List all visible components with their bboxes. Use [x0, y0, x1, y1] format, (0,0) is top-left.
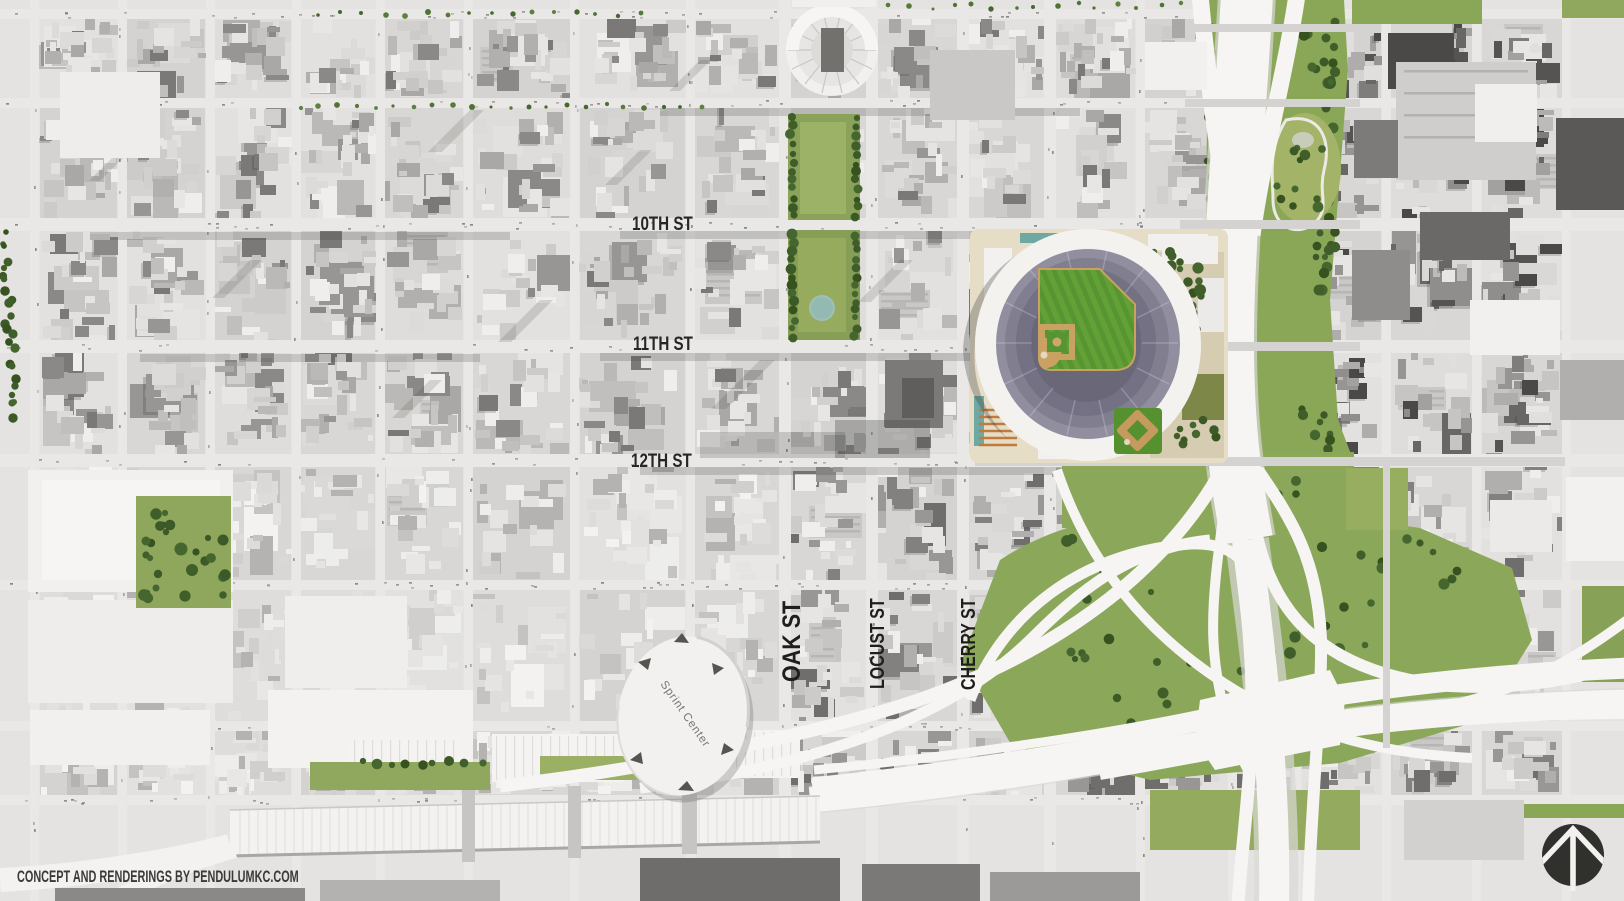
- svg-text:11TH ST: 11TH ST: [633, 332, 693, 354]
- svg-text:10TH ST: 10TH ST: [632, 212, 693, 234]
- svg-text:OAK ST: OAK ST: [777, 601, 805, 682]
- svg-text:CONCEPT AND RENDERINGS BY PEND: CONCEPT AND RENDERINGS BY PENDULUMKC.COM: [17, 867, 299, 886]
- svg-text:LOCUST ST: LOCUST ST: [866, 598, 888, 689]
- svg-text:12TH ST: 12TH ST: [631, 449, 692, 471]
- svg-text:CHERRY ST: CHERRY ST: [957, 598, 979, 690]
